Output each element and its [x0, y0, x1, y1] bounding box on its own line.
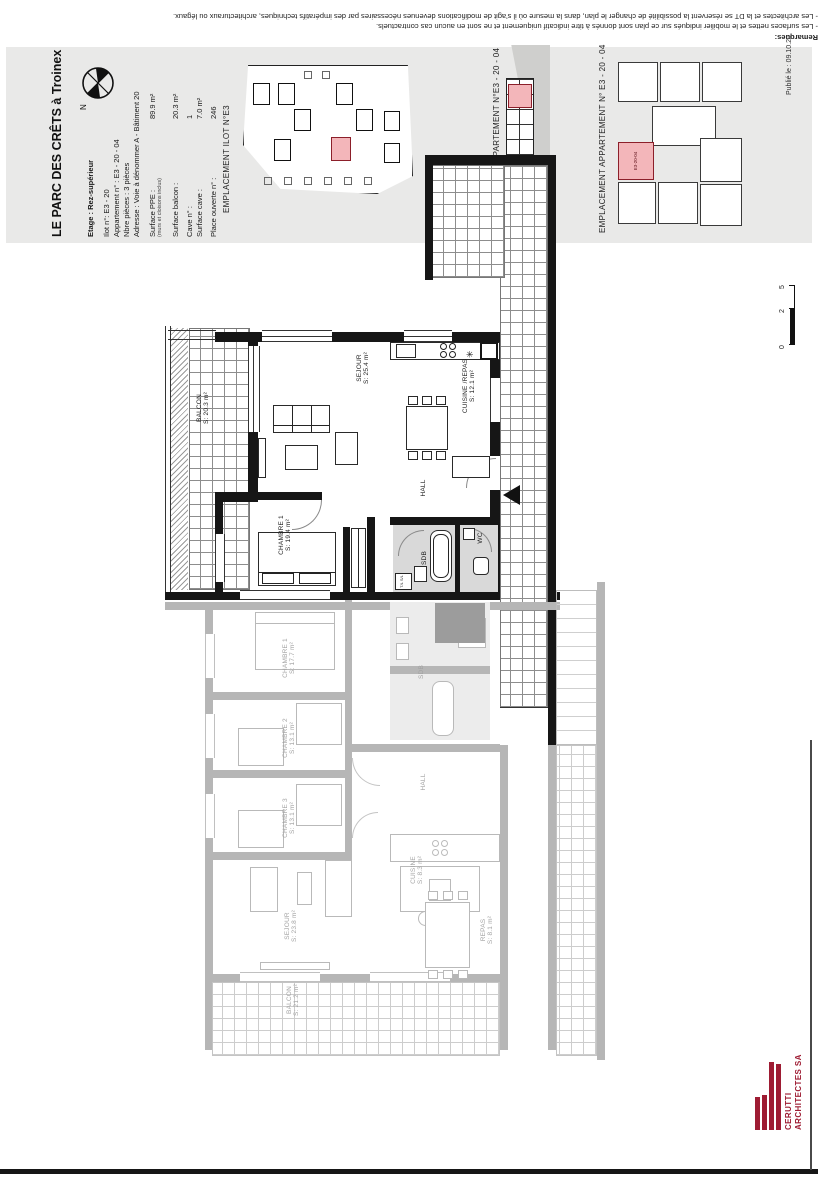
- wall: [425, 165, 433, 280]
- sheet-edge-bar: [0, 1169, 818, 1174]
- tb-value: 246: [209, 106, 218, 119]
- tb-label: Surface balcon :: [171, 183, 180, 237]
- room-label-hall: HALL: [420, 470, 427, 506]
- tb-value: 7.0 m²: [195, 98, 204, 119]
- tb-row: Adresse : Voie à dénommer A - Bâtiment 2…: [132, 91, 141, 237]
- tb-row: Ilot n°: E3 - 20: [102, 189, 111, 237]
- stove-burner: [440, 343, 447, 350]
- ghost-room-label-sejour: SEJOUR S: 23.8 m²: [284, 896, 299, 956]
- scale-tick: [789, 344, 795, 345]
- room-name: CHAMBRE 1: [278, 500, 285, 570]
- tb-value: E3 - 20 - 04: [112, 139, 121, 178]
- bed: [258, 532, 336, 586]
- tb-label: Nbre pièces :: [122, 193, 131, 237]
- highlighted-unit-block: E3-20-04: [618, 142, 654, 180]
- header-band: LE PARC DES CRÊTS à Troinex N Etage : Re…: [6, 47, 812, 243]
- ghost-sofa: [250, 867, 278, 912]
- room-area: S: 8.1 m²: [487, 904, 494, 956]
- wall: [343, 527, 350, 592]
- ghost-door-arc: [352, 758, 380, 786]
- ghost-room-label-balcon: BALCON S: 21.2 m²: [286, 970, 301, 1030]
- building-block: [384, 111, 400, 131]
- chair: [436, 396, 446, 405]
- ghost-desk: [238, 728, 284, 766]
- wardrobe-line: [358, 529, 359, 587]
- unit-block: [618, 182, 656, 224]
- remarks-line: - Les surfaces nettes et le mobilier ind…: [0, 21, 818, 32]
- tb-row: Appartement n° : E3 - 20 - 04: [112, 139, 121, 237]
- ghost-chair: [458, 970, 468, 979]
- apartment-panel-title: EMPLACEMENT APPARTEMENT N° E3 - 20 - 04: [598, 44, 607, 233]
- logo-name: ARCHITECTES SA: [794, 1054, 803, 1130]
- section-highlight-unit: [508, 84, 532, 108]
- tb-row: Surface balcon : 20.3 m²: [171, 47, 180, 237]
- tb-row: Nbre pièces : 3 pièces: [122, 163, 131, 237]
- wall: [367, 517, 375, 592]
- tb-label: Adresse :: [132, 205, 141, 237]
- north-letter: N: [79, 104, 88, 110]
- room-name: SEJOUR: [284, 896, 291, 956]
- room-name: REPAS: [480, 904, 487, 956]
- unit-block: [700, 184, 742, 226]
- wall: [390, 517, 500, 525]
- balcony-planter: [171, 328, 188, 590]
- tb-value: 89.9 m²: [148, 94, 157, 119]
- pillow: [262, 573, 294, 584]
- ghost-window: [205, 714, 215, 758]
- logo-bar-icon: [762, 1095, 767, 1130]
- building-block: [336, 83, 353, 105]
- tb-label: Surface PPE :: [148, 190, 157, 237]
- tb-label: Cave n° :: [185, 206, 194, 237]
- building-block: [294, 109, 311, 131]
- ghost-coffee-table: [297, 872, 312, 905]
- parking-square: [324, 177, 332, 185]
- logo-name: CERUTTI: [784, 1093, 793, 1130]
- sofa: [273, 405, 330, 433]
- tb-label: Place ouverte n° :: [209, 178, 218, 237]
- logo-bar-icon: [769, 1062, 774, 1130]
- chair: [422, 396, 432, 405]
- scale-line: [794, 285, 795, 345]
- sofa-line: [274, 425, 329, 426]
- room-name: CHAMBRE 2: [282, 706, 289, 770]
- room-name: BALCON: [286, 970, 293, 1030]
- room-area: S: 12.1 m²: [469, 356, 476, 416]
- ghost-wall: [548, 745, 556, 1050]
- ghost-stove-burner: [441, 840, 448, 847]
- room-area: S: 21.2 m²: [293, 970, 300, 1030]
- room-area: S: 20.3 m²: [203, 378, 210, 438]
- ghost-chair: [458, 891, 468, 900]
- ghost-chair: [428, 891, 438, 900]
- sideboard: [452, 456, 490, 478]
- toilet: [473, 557, 489, 575]
- sliding-door-line: [253, 346, 254, 432]
- coffee-table: [285, 445, 318, 470]
- window: [215, 534, 225, 582]
- ghost-wall: [213, 692, 352, 700]
- window: [240, 590, 330, 600]
- ghost-chair: [443, 970, 453, 979]
- window-line: [404, 337, 452, 338]
- wall: [425, 155, 556, 165]
- parking-square: [304, 177, 312, 185]
- armchair: [335, 432, 358, 465]
- sofa-line: [292, 406, 293, 432]
- ghost-single-bed: [296, 703, 342, 745]
- ghost-door-arc: [352, 812, 378, 838]
- room-name: CHAMBRE 1: [282, 626, 289, 690]
- tb-row: Place ouverte n° : 246: [209, 47, 218, 237]
- ghost-bathtub: [432, 681, 454, 736]
- ghost-chair: [428, 970, 438, 979]
- ghost-stove-burner: [432, 849, 439, 856]
- ppe-note: (murs et cloisons inclus): [157, 178, 163, 237]
- building-block: [253, 83, 270, 105]
- unit-block: [618, 62, 658, 102]
- tb-row: Surface PPE : 89.9 m²: [148, 47, 157, 237]
- ghost-washbasin: [396, 617, 409, 634]
- tb-value: E3 - 20: [102, 189, 111, 213]
- ghost-wall: [213, 770, 352, 778]
- parking-square: [322, 71, 330, 79]
- building-block: [356, 109, 373, 131]
- building-block: [384, 143, 400, 163]
- kitchen-sink: [396, 344, 416, 358]
- highlighted-building-block: [331, 137, 351, 161]
- room-label-sejour: SEJOUR S: 25.4 m²: [356, 338, 371, 398]
- room-name: CUISINE /REPAS: [462, 356, 469, 416]
- parking-square: [284, 177, 292, 185]
- sheet-edge-line: [810, 740, 812, 1170]
- fridge: [480, 342, 498, 360]
- ghost-wall: [165, 602, 560, 610]
- tb-value: 20.3 m²: [171, 94, 180, 119]
- remarks-line: - Les architectes et la DT se réservent …: [0, 11, 818, 22]
- scale-number: 0: [779, 345, 786, 349]
- ghost-gallery-tile: [556, 745, 597, 1056]
- bathtub-inner: [433, 534, 449, 578]
- room-name: CUISINE: [410, 842, 417, 898]
- balcony-side-edge: [168, 330, 216, 340]
- building-block: [278, 83, 295, 105]
- pillow: [299, 573, 331, 584]
- room-label-wc: WC: [477, 526, 484, 550]
- wall: [215, 492, 258, 502]
- room-area: S: 19.4 m²: [285, 500, 292, 570]
- stove-burner: [449, 351, 456, 358]
- ghost-room-label-repas: REPAS S: 8.1 m²: [480, 904, 495, 956]
- room-name: CHAMBRE 3: [282, 786, 289, 850]
- room-label-sdb: SDB: [421, 544, 428, 572]
- room-area: S: 17.7 m²: [289, 626, 296, 690]
- ghost-single-bed: [296, 784, 342, 826]
- ghost-washbasin: [396, 643, 409, 660]
- chair: [436, 451, 446, 460]
- ghost-desk: [238, 810, 284, 848]
- ghost-sliding-door: [370, 972, 450, 982]
- bathtub: [430, 530, 452, 582]
- tb-value: 3 pièces: [122, 163, 131, 191]
- ghost-wall: [352, 744, 500, 752]
- parking-square: [344, 177, 352, 185]
- door-arc: [292, 500, 322, 530]
- ghost-room-label-sdb: SDB: [418, 658, 425, 686]
- ghost-stairs: [556, 590, 597, 745]
- ghost-stove-burner: [441, 849, 448, 856]
- dining-table: [406, 406, 448, 450]
- ghost-room-label-chambre3: CHAMBRE 3 S: 13.1 m²: [282, 786, 297, 850]
- scale-number: 5: [779, 285, 786, 289]
- stove-burner: [440, 351, 447, 358]
- ghost-window: [205, 634, 215, 678]
- tb-value: 1: [185, 115, 194, 119]
- logo-bar-icon: [776, 1064, 781, 1130]
- tb-value: Voie à dénommer A - Bâtiment 20: [132, 91, 141, 203]
- plan-sheet: Remarques: - Les surfaces nettes et le m…: [0, 0, 818, 1178]
- ghost-stove-burner: [432, 840, 439, 847]
- ghost-wall: [345, 600, 352, 860]
- room-label-cuisine: CUISINE /REPAS S: 12.1 m²: [462, 356, 477, 416]
- ghost-wall: [390, 666, 490, 674]
- ghost-tv-bench: [260, 962, 330, 970]
- tv-bench: [258, 438, 266, 478]
- room-area: S: 13.1 m²: [289, 786, 296, 850]
- unit-block: [700, 138, 742, 182]
- room-name: BALCON: [196, 378, 203, 438]
- ghost-wall: [213, 852, 352, 860]
- north-compass-icon: N: [74, 62, 120, 112]
- room-label-balcon: BALCON S: 20.3 m²: [196, 378, 211, 438]
- tb-label: Ilot n°:: [102, 216, 111, 237]
- scale-segment: [790, 309, 794, 345]
- unit-code: E3-20-04: [633, 143, 638, 179]
- gallery-step: [500, 707, 548, 745]
- etage-line: Etage : Rez-supérieur: [86, 160, 95, 237]
- room-label-chambre1: CHAMBRE 1 S: 19.4 m²: [278, 500, 293, 570]
- ghost-kitchen-counter: [390, 834, 500, 862]
- parking-square: [364, 177, 372, 185]
- remarks-title: Remarques:: [0, 32, 818, 43]
- ghost-room-label-chambre1: CHAMBRE 1 S: 17.7 m²: [282, 626, 297, 690]
- tb-row: Cave n° : 1: [185, 47, 194, 237]
- unit-block: [660, 62, 700, 102]
- chair: [422, 451, 432, 460]
- stove-burner: [449, 343, 456, 350]
- window-line: [262, 337, 332, 338]
- tb-label: Appartement n° :: [112, 181, 121, 237]
- entrance-arrow-icon: [503, 485, 520, 505]
- ghost-chair: [443, 891, 453, 900]
- logo-bar-icon: [755, 1097, 760, 1130]
- ghost-wall: [597, 582, 605, 1060]
- ghost-bed-line: [256, 623, 334, 624]
- sofa-line: [311, 406, 312, 432]
- scale-tick: [789, 285, 795, 286]
- remarks-block: Remarques: - Les surfaces nettes et le m…: [0, 0, 818, 45]
- ilot-panel-title: EMPLACEMENT ILOT N°E3: [222, 105, 231, 213]
- tb-row: Surface cave : 7.0 m²: [195, 47, 204, 237]
- wardrobe: [351, 528, 366, 588]
- scale-tick: [789, 308, 795, 309]
- ghost-room-label-cuisine: CUISINE S: 8.3 m²: [410, 842, 425, 898]
- washer-dryer: T/L S/L: [395, 573, 412, 590]
- parking-square: [264, 177, 272, 185]
- ghost-sofa: [325, 860, 352, 917]
- ghost-window: [205, 794, 215, 838]
- ghost-sliding-door: [240, 972, 320, 982]
- ghost-dining-table: [425, 902, 470, 968]
- chair: [408, 451, 418, 460]
- wall: [258, 492, 322, 500]
- ghost-room-label-chambre2: CHAMBRE 2 S: 13.1 m²: [282, 706, 297, 770]
- parking-square: [304, 71, 312, 79]
- gallery-tile-floor: [425, 165, 505, 278]
- ghost-balcony-tile: [212, 982, 500, 1056]
- room-area: S: 23.8 m²: [291, 896, 298, 956]
- tb-label: Surface cave :: [195, 189, 204, 237]
- scale-number: 2: [779, 309, 786, 313]
- gallery-tile-floor: [500, 165, 548, 708]
- room-area: S: 8.3 m²: [417, 842, 424, 898]
- room-area: S: 13.1 m²: [289, 706, 296, 770]
- ghost-wall: [500, 745, 508, 1050]
- room-name: SEJOUR: [356, 338, 363, 398]
- chair: [408, 396, 418, 405]
- unit-block: [658, 182, 698, 224]
- building-block: [274, 139, 291, 161]
- ghost-room-label-hall: HALL: [420, 764, 427, 800]
- sliding-door: [248, 346, 260, 432]
- room-area: S: 25.4 m²: [363, 338, 370, 398]
- wall: [548, 155, 556, 745]
- project-title: LE PARC DES CRÊTS à Troinex: [50, 50, 64, 237]
- washbasin: [463, 528, 475, 540]
- unit-block: [702, 62, 742, 102]
- ghost-shaft: [435, 603, 485, 643]
- published-date: Publié le : 09.10.20: [786, 35, 793, 95]
